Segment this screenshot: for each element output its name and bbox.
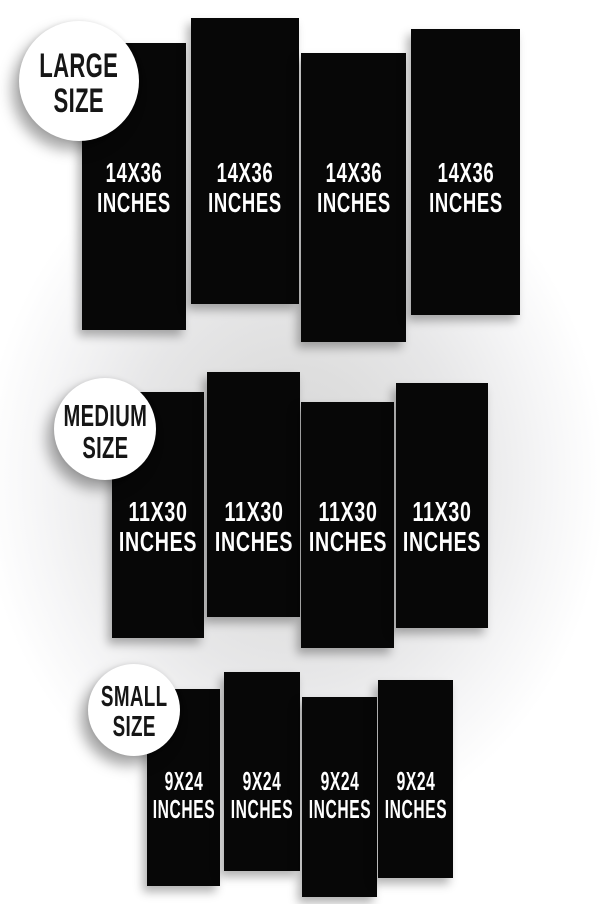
- size-dimensions-text: 11X30: [214, 497, 292, 527]
- large-panel-2: 14X36INCHES: [191, 18, 299, 304]
- small-panel-3: 9X24INCHES: [302, 697, 377, 897]
- badge-size-subword: SIZE: [40, 84, 119, 119]
- large-panel-size-label: 14X36INCHES: [317, 158, 391, 218]
- size-unit-text: INCHES: [308, 796, 371, 824]
- small-size-group: 9X24INCHES9X24INCHES9X24INCHES9X24INCHES…: [0, 0, 600, 904]
- medium-panel-3: 11X30INCHES: [301, 402, 394, 648]
- size-unit-text: INCHES: [429, 188, 503, 218]
- badge-size-word: LARGE: [40, 49, 119, 84]
- size-dimensions-text: 11X30: [403, 497, 481, 527]
- size-dimensions-text: 14X36: [429, 158, 503, 188]
- badge-size-subword: SIZE: [63, 432, 147, 464]
- large-size-badge-label: LARGESIZE: [40, 49, 119, 118]
- size-dimensions-text: 9X24: [231, 768, 294, 796]
- small-panel-size-label: 9X24INCHES: [152, 768, 215, 824]
- size-unit-text: INCHES: [231, 796, 294, 824]
- small-panel-4: 9X24INCHES: [378, 680, 453, 878]
- large-panel-size-label: 14X36INCHES: [97, 158, 171, 218]
- large-panel-size-label: 14X36INCHES: [429, 158, 503, 218]
- medium-size-group: 11X30INCHES11X30INCHES11X30INCHES11X30IN…: [0, 0, 600, 904]
- size-dimensions-text: 11X30: [119, 497, 197, 527]
- small-panel-2: 9X24INCHES: [224, 672, 300, 871]
- medium-panel-1: 11X30INCHES: [112, 392, 204, 638]
- medium-panel-4: 11X30INCHES: [396, 383, 488, 628]
- badge-size-word: SMALL: [101, 683, 168, 713]
- badge-size-subword: SIZE: [101, 713, 168, 743]
- badge-size-word: MEDIUM: [63, 400, 147, 432]
- medium-size-badge-label: MEDIUMSIZE: [63, 400, 147, 463]
- size-unit-text: INCHES: [384, 796, 447, 824]
- medium-panel-size-label: 11X30INCHES: [308, 497, 386, 557]
- size-dimensions-text: 14X36: [97, 158, 171, 188]
- small-panel-1: 9X24INCHES: [147, 689, 220, 886]
- large-panel-4: 14X36INCHES: [411, 29, 520, 315]
- size-comparison-chart: 14X36INCHES14X36INCHES14X36INCHES14X36IN…: [0, 0, 600, 904]
- large-size-badge: LARGESIZE: [19, 21, 139, 141]
- small-size-badge-label: SMALLSIZE: [101, 683, 168, 742]
- size-dimensions-text: 14X36: [208, 158, 282, 188]
- size-dimensions-text: 14X36: [317, 158, 391, 188]
- size-unit-text: INCHES: [317, 188, 391, 218]
- size-unit-text: INCHES: [208, 188, 282, 218]
- medium-panel-size-label: 11X30INCHES: [403, 497, 481, 557]
- large-panel-3: 14X36INCHES: [301, 53, 406, 342]
- size-unit-text: INCHES: [214, 527, 292, 557]
- medium-panel-2: 11X30INCHES: [207, 372, 300, 617]
- size-unit-text: INCHES: [308, 527, 386, 557]
- medium-size-badge: MEDIUMSIZE: [54, 378, 156, 480]
- size-unit-text: INCHES: [152, 796, 215, 824]
- size-unit-text: INCHES: [97, 188, 171, 218]
- small-panel-size-label: 9X24INCHES: [231, 768, 294, 824]
- small-panel-size-label: 9X24INCHES: [308, 768, 371, 824]
- size-dimensions-text: 9X24: [308, 768, 371, 796]
- large-panel-1: 14X36INCHES: [82, 43, 186, 330]
- large-panel-size-label: 14X36INCHES: [208, 158, 282, 218]
- size-unit-text: INCHES: [119, 527, 197, 557]
- size-dimensions-text: 9X24: [384, 768, 447, 796]
- size-unit-text: INCHES: [403, 527, 481, 557]
- medium-panel-size-label: 11X30INCHES: [119, 497, 197, 557]
- size-dimensions-text: 9X24: [152, 768, 215, 796]
- medium-panel-size-label: 11X30INCHES: [214, 497, 292, 557]
- large-size-group: 14X36INCHES14X36INCHES14X36INCHES14X36IN…: [0, 0, 600, 904]
- small-size-badge: SMALLSIZE: [88, 664, 180, 756]
- small-panel-size-label: 9X24INCHES: [384, 768, 447, 824]
- size-dimensions-text: 11X30: [308, 497, 386, 527]
